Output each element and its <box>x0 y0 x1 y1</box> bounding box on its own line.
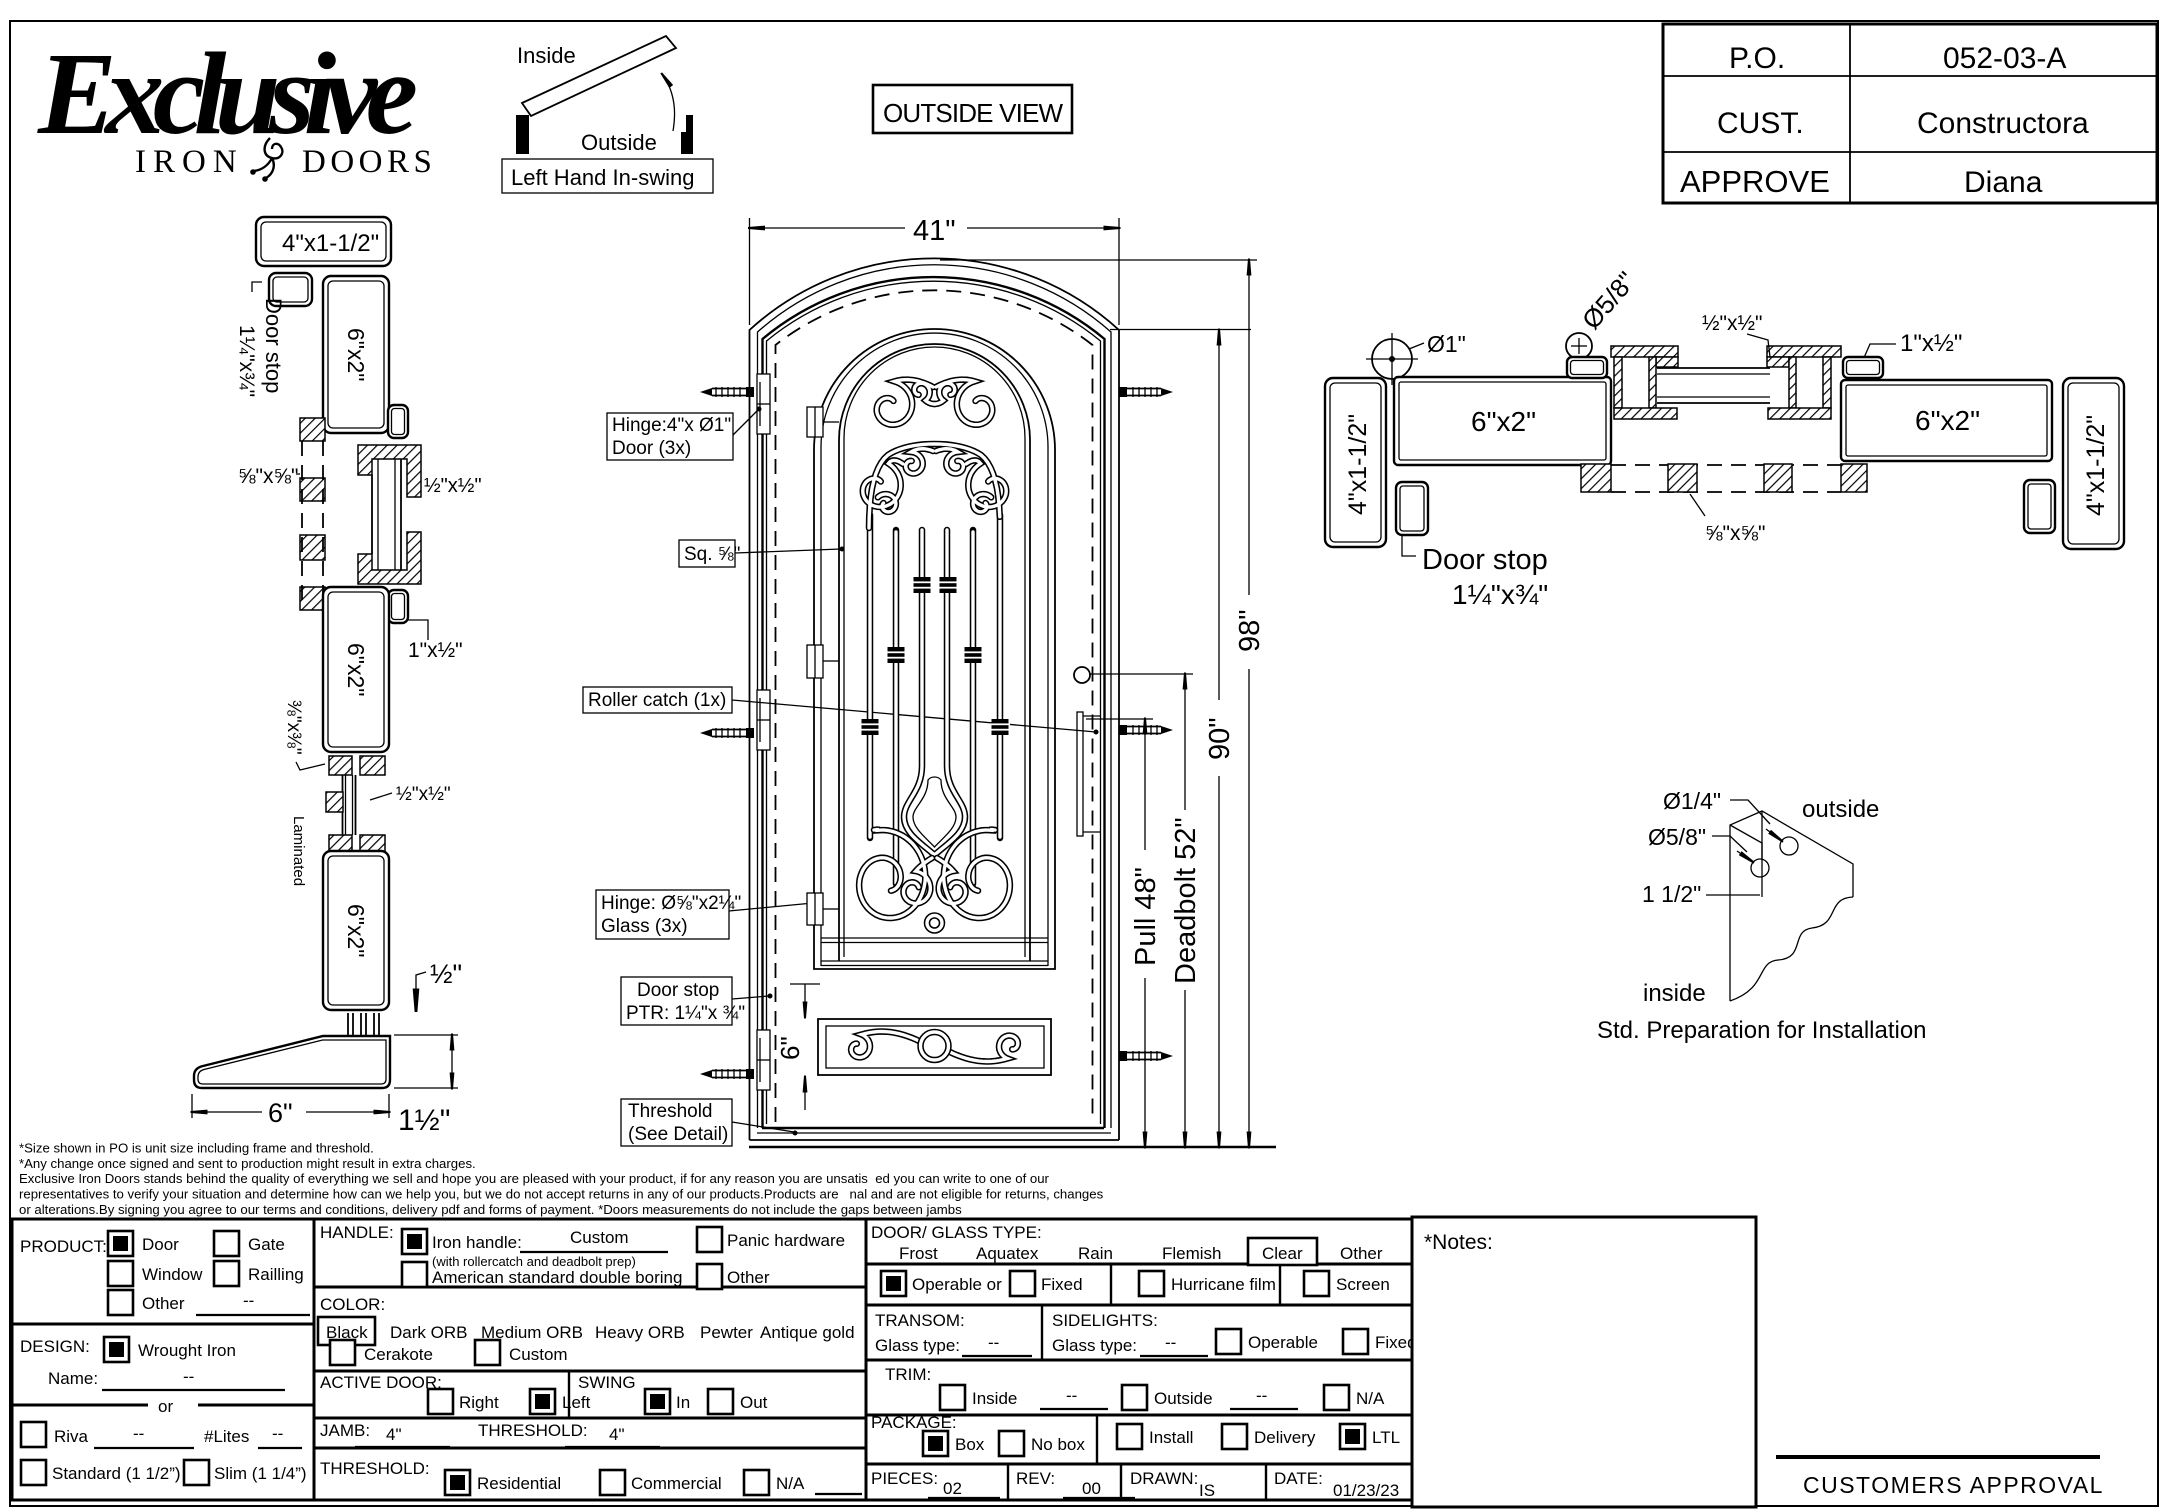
svg-text:(with rollercatch and deadbolt: (with rollercatch and deadbolt prep) <box>432 1254 636 1269</box>
svg-text:Fixed: Fixed <box>1375 1333 1417 1352</box>
svg-text:Other: Other <box>1340 1244 1383 1263</box>
svg-text:In: In <box>676 1393 690 1412</box>
svg-text:00: 00 <box>1082 1479 1101 1498</box>
svg-text:6"x2": 6"x2" <box>1471 406 1536 437</box>
svg-text:Antique gold: Antique gold <box>760 1323 855 1342</box>
svg-text:Name:: Name: <box>48 1369 98 1388</box>
svg-text:PRODUCT:: PRODUCT: <box>20 1237 107 1256</box>
svg-text:P.O.: P.O. <box>1729 42 1785 75</box>
svg-text:Threshold: Threshold <box>628 1101 713 1122</box>
svg-text:Door (3x): Door (3x) <box>612 438 691 459</box>
svg-text:HANDLE:: HANDLE: <box>320 1223 394 1242</box>
svg-text:Out: Out <box>740 1393 768 1412</box>
svg-text:--: -- <box>988 1333 999 1352</box>
svg-text:DESIGN:: DESIGN: <box>20 1337 90 1356</box>
svg-text:Outside: Outside <box>581 130 657 155</box>
svg-text:CUST.: CUST. <box>1717 107 1804 140</box>
svg-text:6"x2": 6"x2" <box>343 328 369 381</box>
svg-text:DRAWN:: DRAWN: <box>1130 1469 1198 1488</box>
svg-text:Std. Preparation for Installat: Std. Preparation for Installation <box>1597 1017 1927 1044</box>
svg-text:41": 41" <box>913 215 956 247</box>
svg-text:Delivery: Delivery <box>1254 1428 1316 1447</box>
svg-text:JAMB:: JAMB: <box>320 1421 370 1440</box>
svg-text:THRESHOLD:: THRESHOLD: <box>478 1421 588 1440</box>
svg-text:Right: Right <box>459 1393 499 1412</box>
svg-text:Inside: Inside <box>517 43 576 68</box>
svg-text:Install: Install <box>1149 1428 1193 1447</box>
svg-text:--: -- <box>1256 1386 1267 1405</box>
svg-text:Roller catch (1x): Roller catch (1x) <box>588 690 726 711</box>
svg-text:Standard (1 1/2”): Standard (1 1/2”) <box>52 1464 181 1483</box>
svg-text:--: -- <box>1165 1333 1176 1352</box>
svg-text:PIECES:: PIECES: <box>871 1469 938 1488</box>
svg-text:Aquatex: Aquatex <box>976 1244 1039 1263</box>
svg-text:⅝"x⅝": ⅝"x⅝" <box>238 465 298 488</box>
svg-text:⅝"x⅝": ⅝"x⅝" <box>1705 522 1765 545</box>
svg-text:1 1/2": 1 1/2" <box>1642 881 1701 907</box>
svg-text:Box: Box <box>955 1435 985 1454</box>
svg-text:Glass (3x): Glass (3x) <box>601 916 688 937</box>
svg-text:Laminated: Laminated <box>290 816 307 886</box>
svg-text:THRESHOLD:: THRESHOLD: <box>320 1459 430 1478</box>
svg-text:--: -- <box>243 1291 254 1310</box>
svg-text:Riva: Riva <box>54 1427 89 1446</box>
svg-text:Outside: Outside <box>1154 1389 1213 1408</box>
svg-text:Deadbolt 52": Deadbolt 52" <box>1170 817 1202 984</box>
svg-text:Railling: Railling <box>248 1265 304 1284</box>
svg-text:Left Hand In-swing: Left Hand In-swing <box>511 165 694 190</box>
svg-text:½": ½" <box>430 959 462 989</box>
svg-text:Flemish: Flemish <box>1162 1244 1222 1263</box>
svg-text:01/23/23: 01/23/23 <box>1333 1481 1399 1500</box>
svg-text:SIDELIGHTS:: SIDELIGHTS: <box>1052 1311 1158 1330</box>
svg-text:--: -- <box>272 1424 283 1443</box>
svg-text:½"x½": ½"x½" <box>1702 312 1762 335</box>
svg-text:(See Detail): (See Detail) <box>628 1124 728 1145</box>
svg-text:CUSTOMERS APPROVAL: CUSTOMERS APPROVAL <box>1803 1472 2104 1498</box>
svg-text:OUTSIDE VIEW: OUTSIDE VIEW <box>883 98 1063 128</box>
svg-text:Window: Window <box>142 1265 203 1284</box>
svg-text:Wrought Iron: Wrought Iron <box>138 1341 236 1360</box>
svg-text:or alterations.By signing you: or alterations.By signing you agree to o… <box>19 1202 962 1217</box>
svg-text:Exclusive Iron Doors stands be: Exclusive Iron Doors stands behind the q… <box>19 1171 1050 1186</box>
svg-text:½"x½": ½"x½" <box>396 784 451 805</box>
svg-text:IRON: IRON <box>135 144 244 180</box>
svg-text:REV:: REV: <box>1016 1469 1055 1488</box>
svg-text:Heavy ORB: Heavy ORB <box>595 1323 685 1342</box>
svg-text:052-03-A: 052-03-A <box>1943 42 2066 75</box>
svg-text:#Lites: #Lites <box>204 1427 249 1446</box>
svg-text:PTR: 1¼"x ¾": PTR: 1¼"x ¾" <box>626 1003 745 1024</box>
svg-text:APPROVE: APPROVE <box>1680 164 1830 199</box>
svg-text:Hurricane film: Hurricane film <box>1171 1275 1276 1294</box>
svg-text:Gate: Gate <box>248 1235 285 1254</box>
svg-text:Ø1/4": Ø1/4" <box>1663 788 1721 814</box>
svg-text:⅜"x⅜": ⅜"x⅜" <box>283 700 304 755</box>
svg-text:Fixed: Fixed <box>1041 1275 1083 1294</box>
svg-text:6"x2": 6"x2" <box>343 904 369 957</box>
svg-text:1"x½": 1"x½" <box>1900 330 1962 357</box>
svg-text:Constructora: Constructora <box>1917 107 2089 140</box>
svg-text:6"x2": 6"x2" <box>1915 405 1980 436</box>
svg-text:4"x1-1/2": 4"x1-1/2" <box>2082 415 2110 516</box>
svg-text:Frost: Frost <box>899 1244 938 1263</box>
svg-text:Custom: Custom <box>570 1228 629 1247</box>
svg-text:--: -- <box>1066 1386 1077 1405</box>
svg-text:COLOR:: COLOR: <box>320 1295 385 1314</box>
svg-text:Sq. ⅝": Sq. ⅝" <box>684 544 740 565</box>
svg-text:Residential: Residential <box>477 1474 561 1493</box>
svg-text:Exclusive: Exclusive <box>37 28 418 159</box>
svg-text:4"x1-1/2": 4"x1-1/2" <box>282 230 379 257</box>
svg-text:representatives to verify your: representatives to verify your situation… <box>19 1187 1104 1202</box>
svg-text:Left: Left <box>562 1393 591 1412</box>
svg-text:No box: No box <box>1031 1435 1085 1454</box>
svg-text:outside: outside <box>1802 796 1879 823</box>
svg-text:Dark ORB: Dark ORB <box>390 1323 467 1342</box>
svg-text:*Size shown in PO is unit size: *Size shown in PO is unit size including… <box>19 1141 374 1156</box>
svg-text:Door stop: Door stop <box>261 298 286 393</box>
svg-text:SWING: SWING <box>578 1373 636 1392</box>
svg-text:DATE:: DATE: <box>1274 1469 1323 1488</box>
svg-text:inside: inside <box>1643 980 1706 1007</box>
svg-text:4": 4" <box>386 1425 402 1444</box>
svg-text:*Notes:: *Notes: <box>1424 1231 1493 1254</box>
svg-text:Door stop: Door stop <box>1422 544 1548 576</box>
svg-text:Custom: Custom <box>509 1345 568 1364</box>
svg-text:Rain: Rain <box>1078 1244 1113 1263</box>
svg-text:1"x½": 1"x½" <box>408 639 463 662</box>
svg-text:Ø1": Ø1" <box>1427 331 1466 357</box>
svg-text:Ø5/8": Ø5/8" <box>1648 824 1706 850</box>
svg-text:Clear: Clear <box>1262 1244 1303 1263</box>
svg-text:Glass type:: Glass type: <box>875 1336 960 1355</box>
svg-text:--: -- <box>133 1424 144 1443</box>
svg-text:--: -- <box>183 1367 194 1386</box>
svg-text:Pull 48": Pull 48" <box>1130 867 1162 966</box>
svg-text:Other: Other <box>727 1268 770 1287</box>
svg-text:02: 02 <box>943 1479 962 1498</box>
svg-text:Commercial: Commercial <box>631 1474 722 1493</box>
svg-text:Door: Door <box>142 1235 179 1254</box>
svg-text:Panic hardware: Panic hardware <box>727 1231 845 1250</box>
svg-text:Cerakote: Cerakote <box>364 1345 433 1364</box>
svg-text:N/A: N/A <box>776 1474 805 1493</box>
svg-text:PACKAGE:: PACKAGE: <box>871 1413 957 1432</box>
svg-text:Hinge:4"x Ø1": Hinge:4"x Ø1" <box>612 415 731 436</box>
svg-text:½"x½": ½"x½" <box>424 475 482 497</box>
svg-text:4": 4" <box>609 1425 625 1444</box>
svg-text:American standard double borin: American standard double boring <box>432 1268 682 1287</box>
svg-text:Hinge: Ø⅝"x2¼": Hinge: Ø⅝"x2¼" <box>601 893 741 914</box>
svg-text:ACTIVE DOOR:: ACTIVE DOOR: <box>320 1373 442 1392</box>
svg-text:N/A: N/A <box>1356 1389 1385 1408</box>
svg-text:Inside: Inside <box>972 1389 1017 1408</box>
svg-text:Iron handle:: Iron handle: <box>432 1233 522 1252</box>
svg-text:Diana: Diana <box>1964 166 2043 199</box>
svg-text:*Any change once signed and se: *Any change once signed and sent to prod… <box>19 1156 476 1171</box>
svg-text:or: or <box>158 1397 173 1416</box>
svg-text:Screen: Screen <box>1336 1275 1390 1294</box>
svg-text:Door stop: Door stop <box>637 980 719 1001</box>
svg-text:90": 90" <box>1204 717 1236 760</box>
svg-text:Operable: Operable <box>1248 1333 1318 1352</box>
svg-text:DOOR/ GLASS TYPE:: DOOR/ GLASS TYPE: <box>871 1223 1042 1242</box>
svg-text:1¼"x¾": 1¼"x¾" <box>1452 579 1548 610</box>
svg-text:4"x1-1/2": 4"x1-1/2" <box>1344 414 1372 515</box>
svg-text:6": 6" <box>775 1036 805 1060</box>
svg-text:DOORS: DOORS <box>302 144 436 180</box>
svg-text:Pewter: Pewter <box>700 1323 753 1342</box>
svg-text:Slim (1 1/4”): Slim (1 1/4”) <box>214 1464 307 1483</box>
svg-text:6": 6" <box>268 1098 293 1128</box>
svg-text:1¼"x¾": 1¼"x¾" <box>235 325 258 397</box>
svg-text:6"x2": 6"x2" <box>343 643 369 696</box>
svg-text:IS: IS <box>1199 1481 1215 1500</box>
svg-text:TRIM:: TRIM: <box>885 1365 931 1384</box>
svg-text:98": 98" <box>1234 609 1266 652</box>
svg-text:1½": 1½" <box>398 1104 450 1137</box>
svg-text:Other: Other <box>142 1294 185 1313</box>
svg-text:Operable or: Operable or <box>912 1275 1002 1294</box>
svg-text:LTL: LTL <box>1372 1428 1400 1447</box>
svg-text:TRANSOM:: TRANSOM: <box>875 1311 965 1330</box>
svg-text:Glass type:: Glass type: <box>1052 1336 1137 1355</box>
